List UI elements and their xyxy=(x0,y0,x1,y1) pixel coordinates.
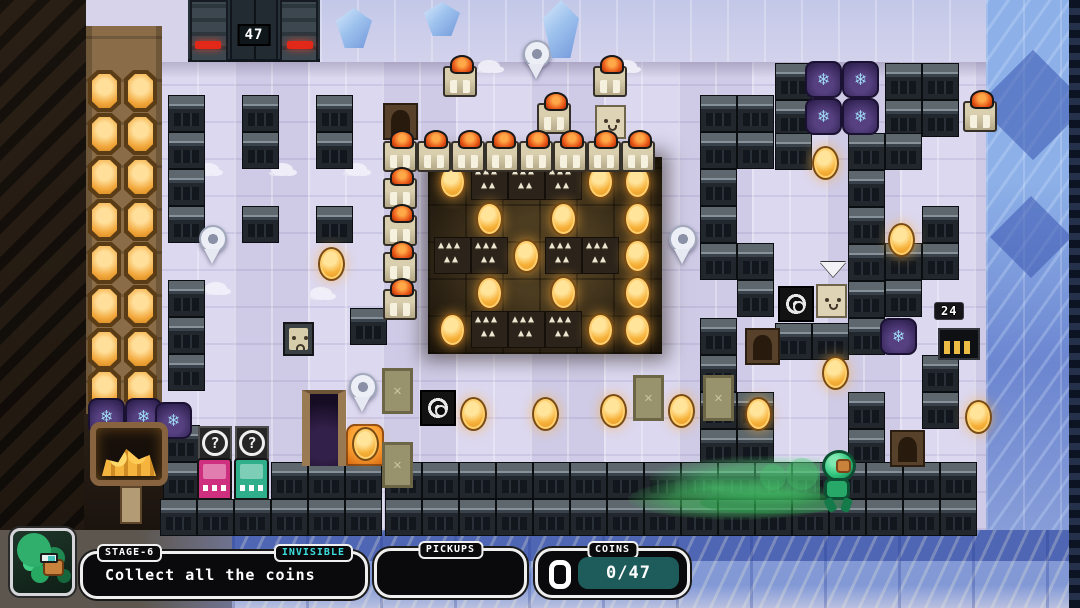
spike-trap xyxy=(434,237,471,274)
metal-block xyxy=(922,63,959,100)
robot-enemy xyxy=(593,66,627,97)
metal-block xyxy=(775,323,812,360)
metal-block xyxy=(422,462,459,499)
gold-pile xyxy=(102,446,156,476)
metal-block xyxy=(737,132,774,169)
coin-sprite xyxy=(624,239,651,273)
big-coin-sprite xyxy=(88,242,121,284)
robot-enemy xyxy=(443,66,477,97)
coin-sprite xyxy=(476,276,503,310)
spike-trap xyxy=(582,237,619,274)
frost-barrel xyxy=(842,61,879,98)
avatar xyxy=(10,528,75,596)
metal-block xyxy=(848,392,885,429)
snow-patch xyxy=(310,287,332,300)
coin-sprite xyxy=(812,146,839,180)
metal-block xyxy=(885,133,922,170)
metal-block xyxy=(570,462,607,499)
spike-trap xyxy=(471,311,508,348)
metal-block xyxy=(922,355,959,392)
metal-block xyxy=(885,280,922,317)
big-coin-sprite xyxy=(88,285,121,327)
snow-patch xyxy=(478,60,500,73)
coin-sprite xyxy=(822,356,849,390)
metal-block xyxy=(163,462,200,499)
robot-enemy xyxy=(587,141,621,172)
metal-block xyxy=(848,244,885,281)
coin-sprite xyxy=(624,202,651,236)
big-coin-sprite xyxy=(124,242,157,284)
metal-block xyxy=(496,462,533,499)
vending-machine xyxy=(234,458,269,500)
metal-block xyxy=(700,243,737,280)
face-mouth xyxy=(296,344,305,350)
robot-enemy xyxy=(519,141,553,172)
coin-sprite xyxy=(745,397,772,431)
spike-trap xyxy=(545,237,582,274)
big-coin-sprite xyxy=(124,285,157,327)
hud-bar: STAGE-6 INVISIBLE Collect all the coins … xyxy=(0,520,1080,608)
game-screen[interactable]: 47 24 STAGE-6 INVISIBLE Collect all the … xyxy=(0,0,1080,608)
door-block xyxy=(890,430,925,467)
player-character[interactable] xyxy=(800,450,872,514)
frost-barrel xyxy=(805,61,842,98)
metal-block xyxy=(922,243,959,280)
pickups-label: PICKUPS xyxy=(418,541,483,559)
stage-label: STAGE-6 xyxy=(97,544,162,562)
big-coin-sprite xyxy=(124,70,157,112)
metal-block xyxy=(316,95,353,132)
coin-sprite xyxy=(624,276,651,310)
big-coin-sprite xyxy=(88,113,121,155)
face-block xyxy=(816,284,847,318)
exit-gate: 47 xyxy=(188,0,320,62)
metal-block xyxy=(700,95,737,132)
metal-block xyxy=(848,170,885,207)
coin-sprite xyxy=(668,394,695,428)
metal-block xyxy=(700,169,737,206)
spike-trap xyxy=(545,311,582,348)
pin-marker-icon xyxy=(522,40,552,86)
metal-block xyxy=(922,392,959,429)
snow-patch xyxy=(205,282,227,295)
metal-block xyxy=(885,100,922,137)
gate-light-icon xyxy=(287,41,313,49)
robot-enemy xyxy=(553,141,587,172)
coin-sprite xyxy=(587,313,614,347)
coin-gate-device xyxy=(938,328,980,360)
coin-gate-counter: 24 xyxy=(934,302,964,320)
metal-block xyxy=(812,323,849,360)
big-coin-sprite xyxy=(124,113,157,155)
metal-block xyxy=(459,462,496,499)
coin-sprite xyxy=(532,397,559,431)
pin-marker-icon xyxy=(348,373,378,419)
robot-enemy xyxy=(417,141,451,172)
gate-panel-left xyxy=(190,0,228,62)
gold-minecart xyxy=(90,422,168,486)
wooden-crate xyxy=(633,375,664,421)
big-coin-sprite xyxy=(124,199,157,241)
door-block xyxy=(745,328,780,365)
robot-enemy xyxy=(963,101,997,132)
big-coin-sprite xyxy=(88,328,121,370)
face-eyes xyxy=(292,336,296,340)
big-coin-sprite xyxy=(88,199,121,241)
robot-enemy xyxy=(621,141,655,172)
metal-block xyxy=(940,462,977,499)
coin-sprite xyxy=(460,397,487,431)
metal-block xyxy=(316,132,353,169)
coin-sprite xyxy=(352,427,379,461)
metal-block xyxy=(350,308,387,345)
player-face xyxy=(836,459,851,473)
coin-sprite xyxy=(476,202,503,236)
mystery-block xyxy=(235,426,269,460)
gate-light-icon xyxy=(195,41,221,49)
wooden-crate xyxy=(382,442,413,488)
metal-block xyxy=(700,318,737,355)
metal-block xyxy=(308,462,345,499)
coin-sprite xyxy=(965,400,992,434)
metal-block xyxy=(533,462,570,499)
metal-block xyxy=(271,462,308,499)
metal-block xyxy=(168,95,205,132)
board-sprites xyxy=(0,0,1080,608)
metal-block xyxy=(922,206,959,243)
coin-sprite xyxy=(600,394,627,428)
ice-crystal xyxy=(424,2,460,36)
frost-barrel xyxy=(842,98,879,135)
spike-trap xyxy=(471,237,508,274)
metal-block xyxy=(168,169,205,206)
coin-sprite xyxy=(513,239,540,273)
robot-enemy xyxy=(383,289,417,320)
objective-text: Collect all the coins xyxy=(105,566,316,584)
metal-block xyxy=(848,281,885,318)
spike-trap xyxy=(508,311,545,348)
speaker-block xyxy=(420,390,456,426)
ghost-afterimage xyxy=(786,458,818,490)
mystery-block xyxy=(198,426,232,460)
avatar-goggles xyxy=(40,553,58,563)
coin-sprite xyxy=(318,247,345,281)
big-coin-sprite xyxy=(88,156,121,198)
coins-panel: COINS 0/47 xyxy=(535,548,690,598)
metal-block xyxy=(316,206,353,243)
metal-block xyxy=(345,462,382,499)
cart-support xyxy=(120,486,142,524)
vending-machine xyxy=(197,458,232,500)
ghost-afterimage xyxy=(760,464,786,490)
objective-panel: STAGE-6 INVISIBLE Collect all the coins xyxy=(80,551,368,599)
coin-sprite xyxy=(888,223,915,257)
pickups-panel: PICKUPS xyxy=(374,548,527,598)
metal-block xyxy=(737,95,774,132)
metal-block xyxy=(242,132,279,169)
face-eyes xyxy=(825,298,829,302)
face-block xyxy=(283,322,314,356)
coin-icon xyxy=(549,560,571,589)
coin-count: 0/47 xyxy=(578,557,679,589)
wooden-crate xyxy=(703,375,734,421)
ice-crystal xyxy=(336,8,372,48)
metal-block xyxy=(168,317,205,354)
robot-enemy xyxy=(485,141,519,172)
coin-sprite xyxy=(550,202,577,236)
big-coin-sprite xyxy=(88,70,121,112)
frost-barrel xyxy=(880,318,917,355)
metal-block xyxy=(737,243,774,280)
wooden-crate xyxy=(382,368,413,414)
coin-sprite xyxy=(624,313,651,347)
metal-block xyxy=(700,132,737,169)
metal-block xyxy=(737,280,774,317)
face-eyes xyxy=(604,119,608,123)
coin-sprite xyxy=(439,313,466,347)
metal-block xyxy=(242,206,279,243)
metal-block xyxy=(922,100,959,137)
pin-marker-icon xyxy=(668,225,698,271)
cave-doorway xyxy=(302,390,346,466)
metal-block xyxy=(775,133,812,170)
coin-sprite xyxy=(550,276,577,310)
metal-block xyxy=(885,63,922,100)
metal-block xyxy=(168,132,205,169)
metal-block xyxy=(168,354,205,391)
metal-block xyxy=(700,206,737,243)
pin-marker-icon xyxy=(198,225,228,271)
big-coin-sprite xyxy=(124,328,157,370)
big-coin-sprite xyxy=(124,156,157,198)
metal-block xyxy=(242,95,279,132)
gate-panel-right xyxy=(280,0,318,62)
robot-enemy xyxy=(451,141,485,172)
metal-block xyxy=(903,462,940,499)
gate-coin-counter: 47 xyxy=(238,24,271,46)
frost-barrel xyxy=(805,98,842,135)
down-arrow-icon xyxy=(820,262,846,277)
modifier-badge: INVISIBLE xyxy=(274,544,353,562)
metal-block xyxy=(168,280,205,317)
metal-block xyxy=(848,133,885,170)
robot-enemy xyxy=(537,103,571,134)
face-mouth xyxy=(829,304,838,310)
speaker-block xyxy=(778,286,814,322)
metal-block xyxy=(848,207,885,244)
